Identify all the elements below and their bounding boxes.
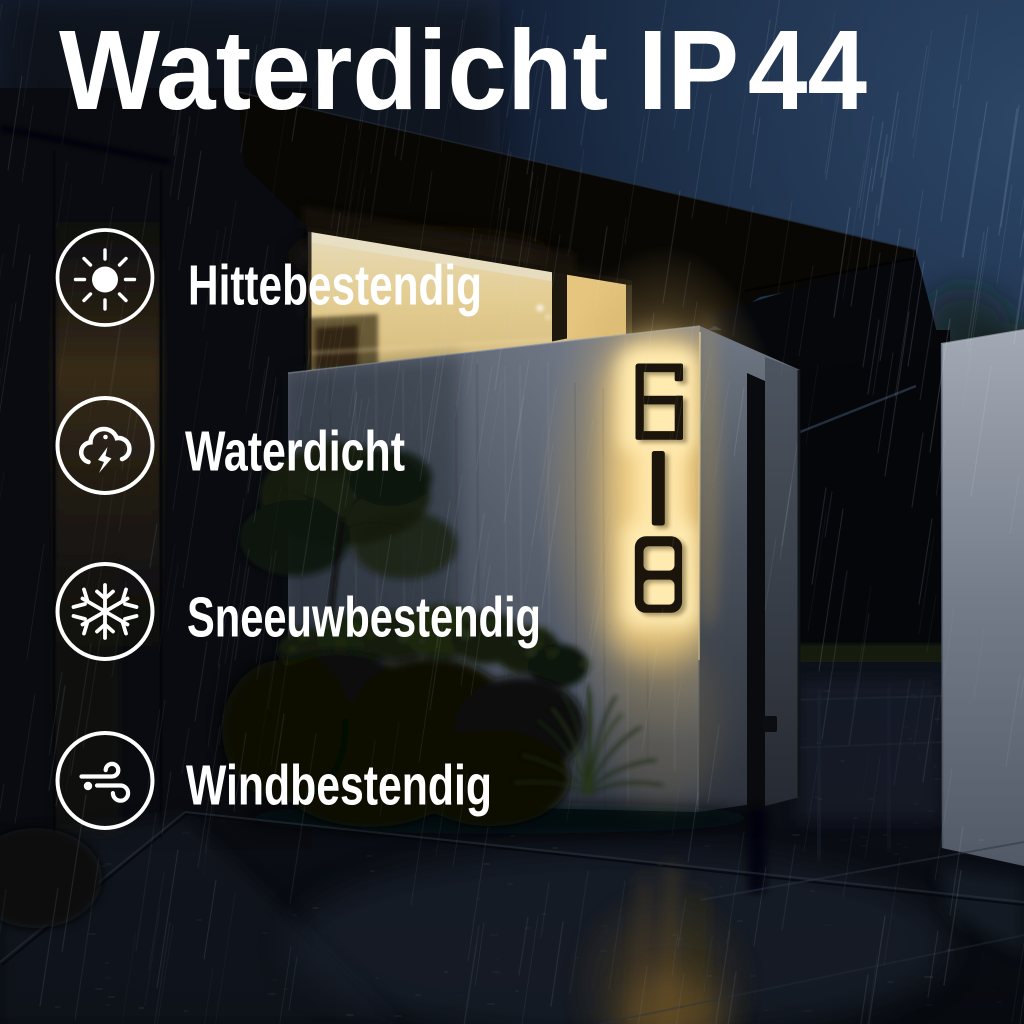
svg-text:Sneeuwbestendig: Sneeuwbestendig [187, 586, 541, 650]
svg-text:Waterdicht IP 44: Waterdicht IP 44 [59, 7, 867, 133]
svg-text:Waterdicht: Waterdicht [185, 420, 405, 484]
svg-text:Windbestendig: Windbestendig [186, 754, 492, 818]
svg-text:Hittebestendig: Hittebestendig [188, 254, 482, 318]
